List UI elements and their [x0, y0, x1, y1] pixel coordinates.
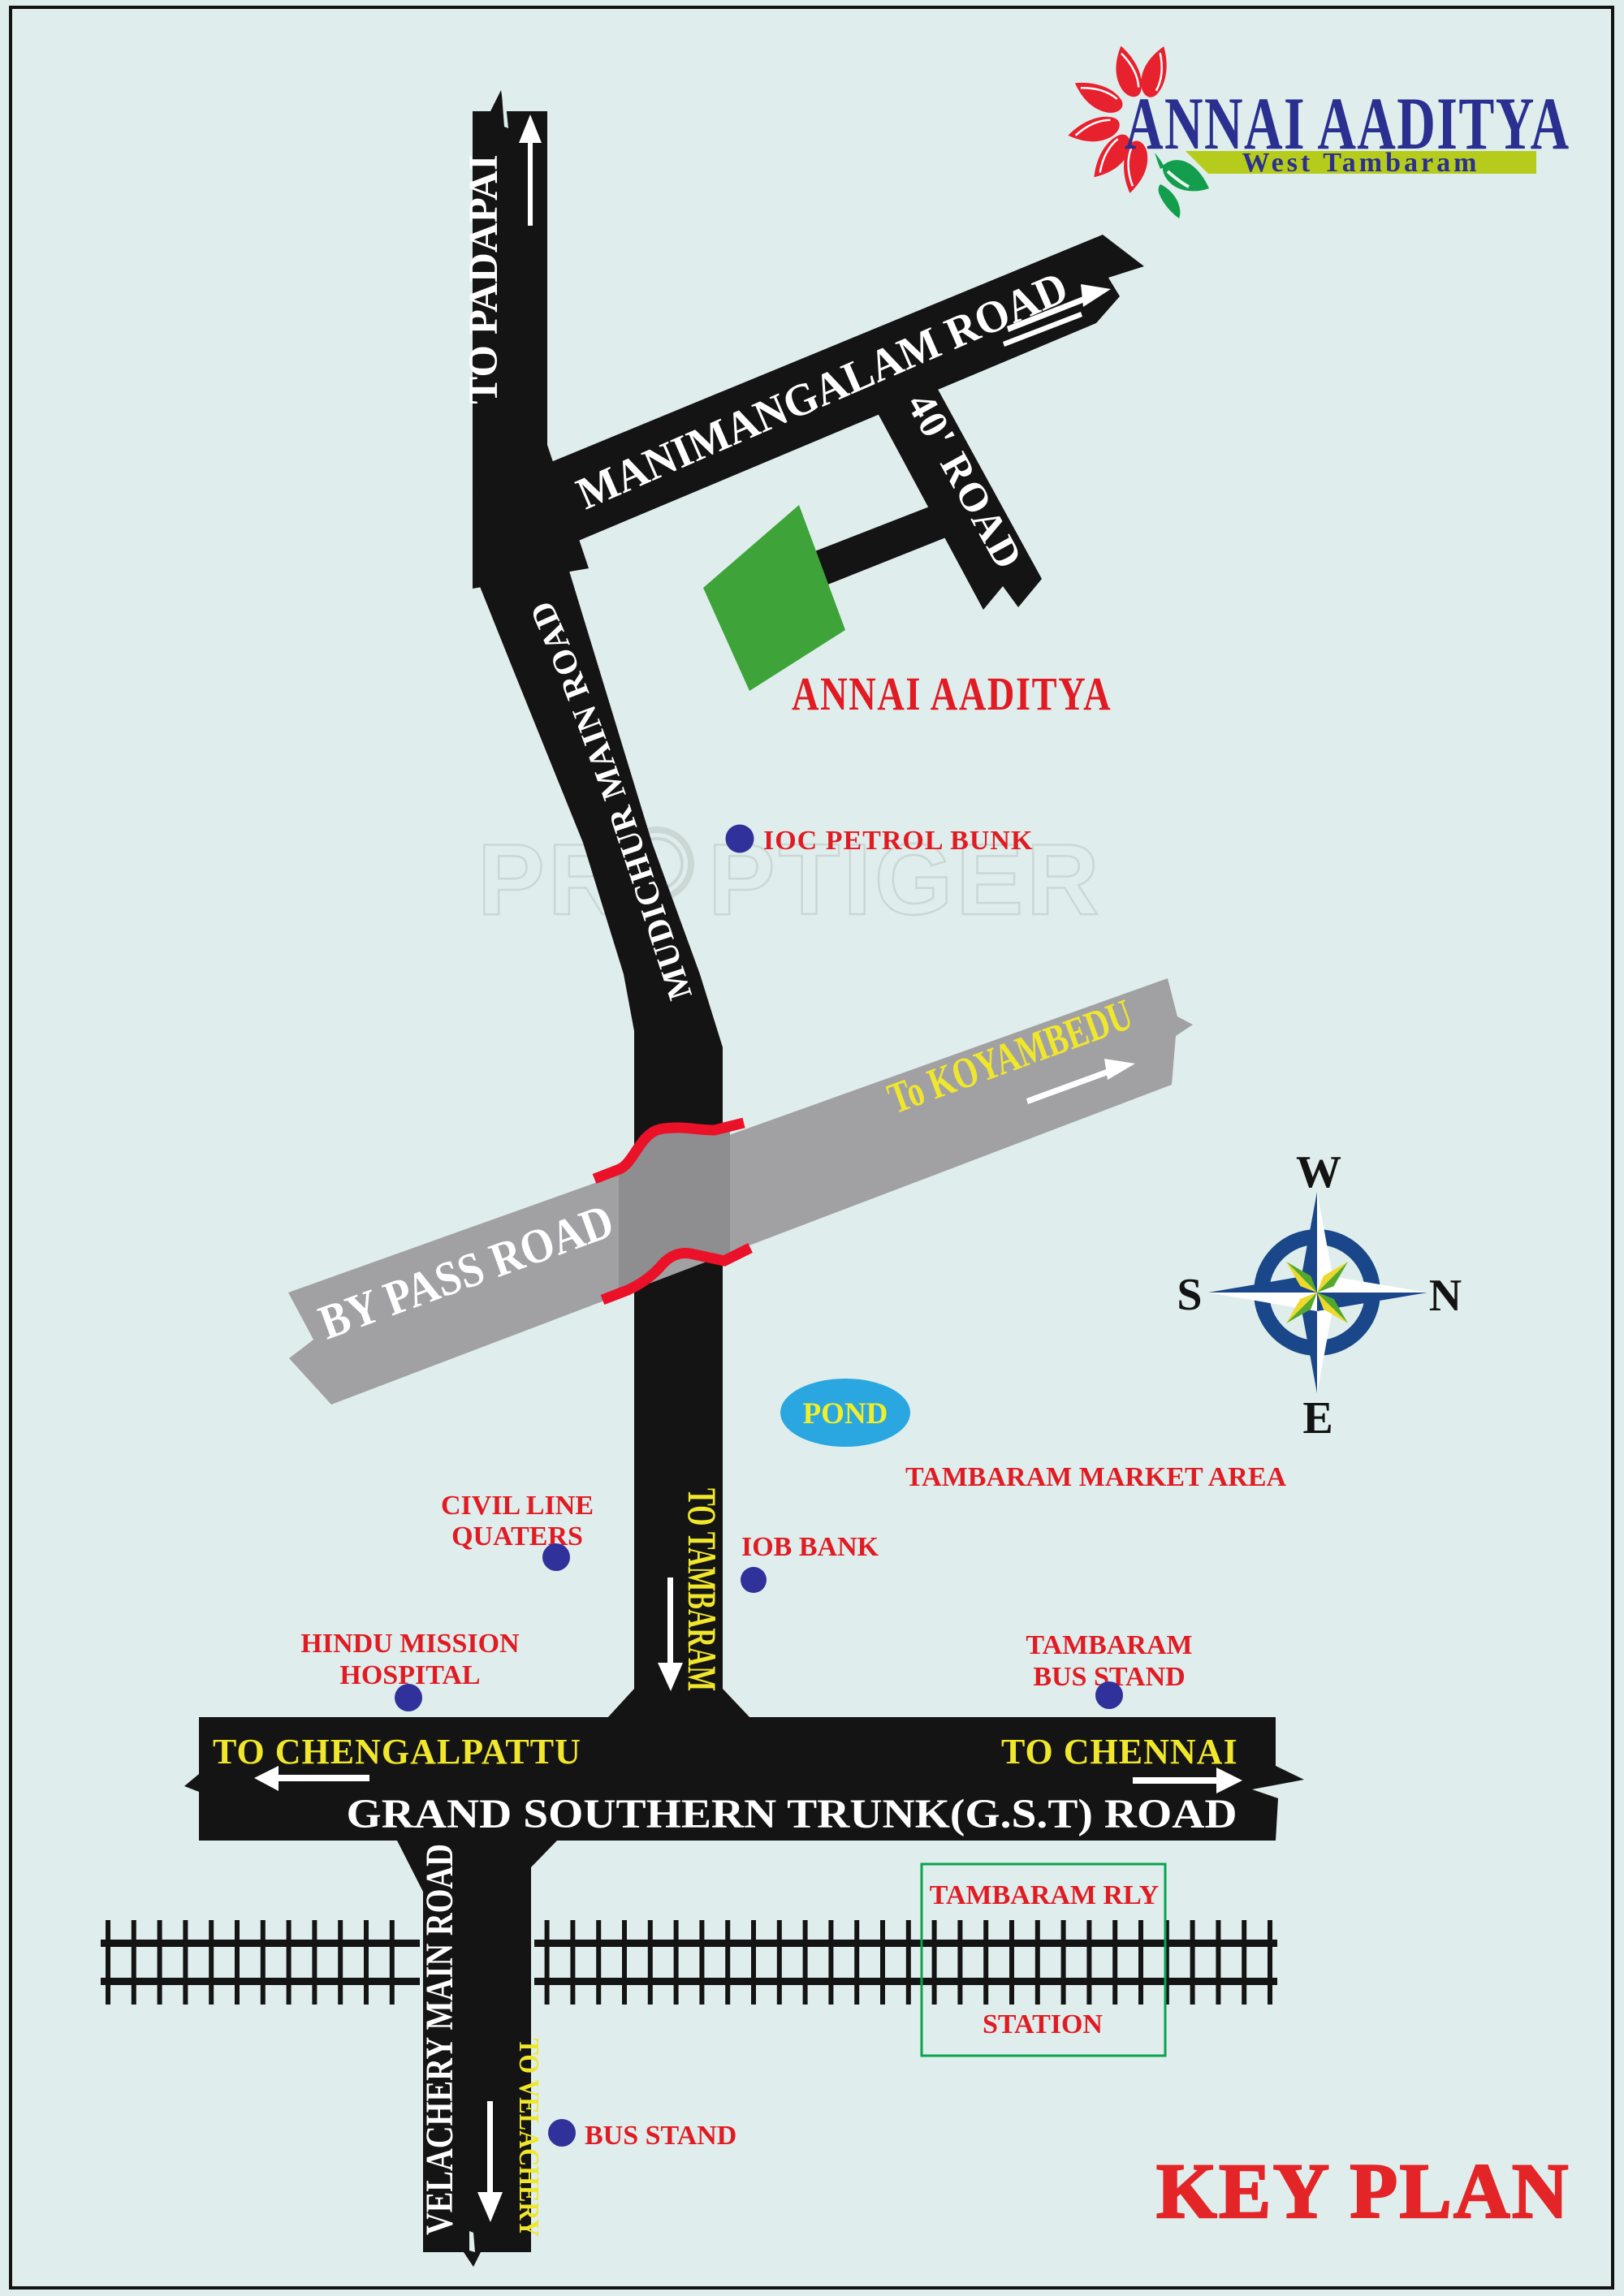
svg-text:ANNAI AADITYA: ANNAI AADITYA: [792, 668, 1112, 720]
svg-text:GRAND SOUTHERN TRUNK(G.S.T) RO: GRAND SOUTHERN TRUNK(G.S.T) ROAD: [347, 1792, 1237, 1837]
svg-text:TAMBARAM MARKET AREA: TAMBARAM MARKET AREA: [905, 1462, 1287, 1492]
svg-text:TO VELACHERY: TO VELACHERY: [513, 2039, 545, 2238]
svg-text:TO CHENNAI: TO CHENNAI: [1001, 1732, 1238, 1772]
svg-text:TAMBARAM RLY: TAMBARAM RLY: [930, 1880, 1159, 1910]
svg-text:TO CHENGALPATTU: TO CHENGALPATTU: [213, 1732, 581, 1772]
svg-text:TO TAMBARAM: TO TAMBARAM: [680, 1488, 725, 1691]
svg-text:IOC PETROL BUNK: IOC PETROL BUNK: [763, 826, 1033, 856]
svg-text:TO PADAPAI: TO PADAPAI: [461, 154, 507, 404]
svg-text:ANNAI AADITYA: ANNAI AADITYA: [1125, 84, 1570, 166]
svg-text:VELACHERY MAIN ROAD: VELACHERY MAIN ROAD: [418, 1844, 461, 2235]
svg-text:BUS STAND: BUS STAND: [585, 2121, 736, 2151]
svg-text:CIVIL LINE: CIVIL LINE: [441, 1491, 594, 1521]
svg-text:E: E: [1302, 1393, 1332, 1444]
svg-text:S: S: [1177, 1270, 1202, 1320]
svg-text:STATION: STATION: [983, 2009, 1103, 2039]
svg-text:W: W: [1296, 1147, 1341, 1198]
svg-text:POND: POND: [803, 1397, 888, 1431]
svg-text:N: N: [1429, 1271, 1462, 1321]
svg-text:KEY PLAN: KEY PLAN: [1156, 2147, 1570, 2234]
svg-text:IOB BANK: IOB BANK: [741, 1532, 879, 1562]
svg-text:HINDU MISSION: HINDU MISSION: [300, 1629, 520, 1659]
svg-text:TAMBARAM: TAMBARAM: [1026, 1630, 1192, 1660]
